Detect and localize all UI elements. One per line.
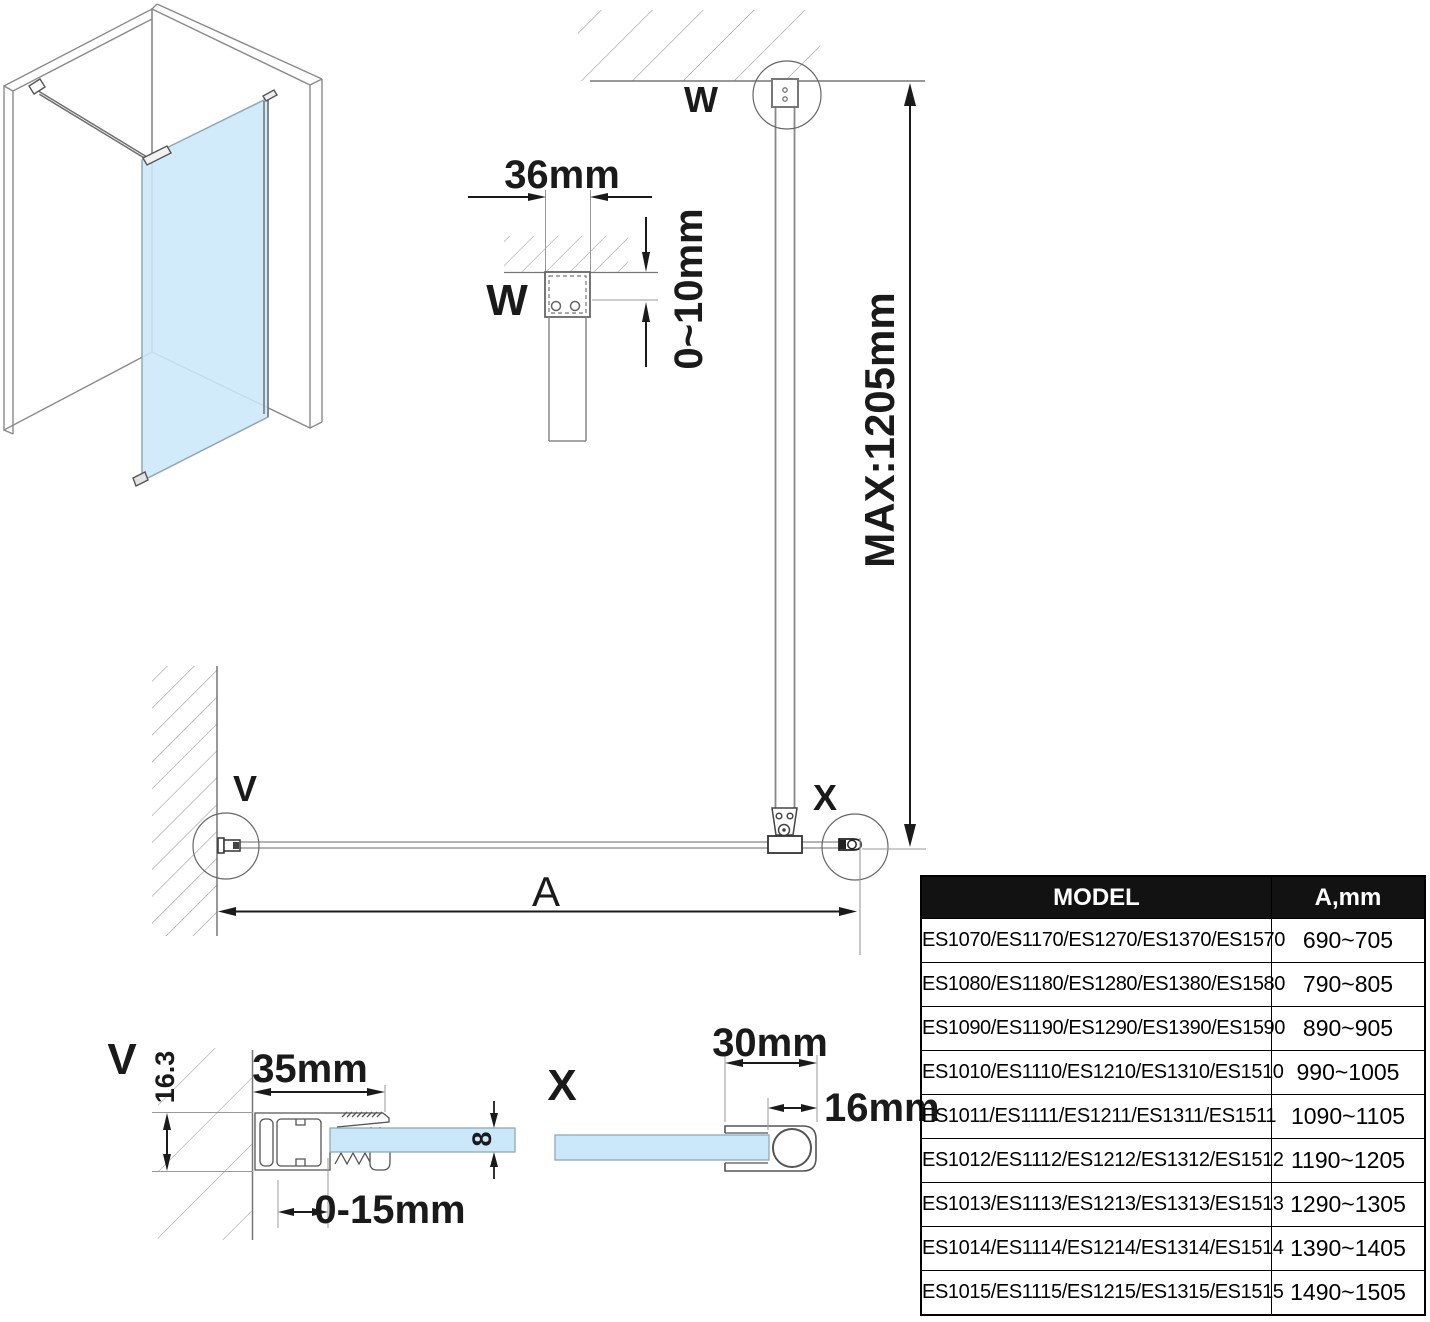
- model-cell: ES1080/ES1180/ES1280/ES1380/ES1580: [921, 963, 1272, 1007]
- table-row: ES1070/ES1170/ES1270/ES1370/ES1570 690~7…: [921, 919, 1425, 963]
- model-cell: ES1070/ES1170/ES1270/ES1370/ES1570: [921, 919, 1272, 963]
- label-v-plan: V: [233, 768, 257, 809]
- dim-max-label: MAX:1205mm: [856, 292, 903, 567]
- dim-30mm-label: 30mm: [712, 1021, 828, 1065]
- dim-8-label: 8: [467, 1131, 497, 1146]
- detail-w: 36mm 0~10mm W: [468, 153, 711, 441]
- dim-35mm-label: 35mm: [252, 1047, 368, 1091]
- model-cell: ES1011/ES1111/ES1211/ES1311/ES1511: [921, 1095, 1272, 1139]
- value-cell: 890~905: [1272, 1007, 1426, 1051]
- value-cell: 1490~1505: [1272, 1271, 1426, 1316]
- value-cell: 1090~1105: [1272, 1095, 1426, 1139]
- isometric-view: [4, 4, 322, 486]
- dim-a-label: A: [532, 868, 560, 915]
- label-x-plan: X: [813, 777, 837, 818]
- model-column-header: MODEL: [921, 876, 1272, 919]
- table-row: ES1014/ES1114/ES1214/ES1314/ES1514 1390~…: [921, 1227, 1425, 1271]
- bar-pivot-bracket: [772, 808, 797, 836]
- support-bar-3d: [37, 90, 152, 162]
- table-row: ES1010/ES1110/ES1210/ES1310/ES1510 990~1…: [921, 1051, 1425, 1095]
- dim-0-15mm-label: 0-15mm: [314, 1188, 465, 1232]
- support-bar-section: [773, 1129, 811, 1167]
- value-cell: 1190~1205: [1272, 1139, 1426, 1183]
- label-w-plan: W: [684, 79, 718, 120]
- table-row: ES1080/ES1180/ES1280/ES1380/ES1580 790~8…: [921, 963, 1425, 1007]
- floor-foot-3d: [133, 472, 148, 486]
- model-cell: ES1090/ES1190/ES1290/ES1390/ES1590: [921, 1007, 1272, 1051]
- table-row: ES1013/ES1113/ES1213/ES1313/ES1513 1290~…: [921, 1183, 1425, 1227]
- ceiling-hatch: [578, 10, 820, 81]
- detail-v: V 16.3 35mm 8 0-15mm: [107, 1035, 515, 1240]
- label-x-detail: X: [547, 1061, 576, 1110]
- detail-w-bar: [549, 317, 586, 441]
- support-bar-plan: [776, 107, 795, 808]
- profile-top-cap-3d: [263, 90, 277, 101]
- glass-section-x: [555, 1135, 769, 1160]
- value-cell: 790~805: [1272, 963, 1426, 1007]
- table-row: ES1011/ES1111/ES1211/ES1311/ES1511 1090~…: [921, 1095, 1425, 1139]
- label-w-detail: W: [486, 276, 528, 325]
- model-cell: ES1012/ES1112/ES1212/ES1312/ES1512: [921, 1139, 1272, 1183]
- installation-diagram-page: W V X A MAX:1205mm 36mm: [0, 0, 1430, 1322]
- wall-profile-plan: [218, 838, 240, 853]
- value-cell: 1290~1305: [1272, 1183, 1426, 1227]
- value-cell: 990~1005: [1272, 1051, 1426, 1095]
- dim-16-3-label: 16.3: [150, 1051, 180, 1104]
- left-wall: [4, 9, 152, 430]
- glass-clamp-plan: [768, 836, 802, 853]
- dim-0-10mm-arrows: [642, 217, 650, 367]
- table-header-row: MODEL A,mm: [921, 876, 1425, 919]
- model-cell: ES1010/ES1110/ES1210/ES1310/ES1510: [921, 1051, 1272, 1095]
- value-cell: 1390~1405: [1272, 1227, 1426, 1271]
- glass-plan: [240, 842, 840, 848]
- table-row: ES1012/ES1112/ES1212/ES1312/ES1512 1190~…: [921, 1139, 1425, 1183]
- glass-end-cap: [839, 839, 861, 850]
- model-cell: ES1014/ES1114/ES1214/ES1314/ES1514: [921, 1227, 1272, 1271]
- model-table: MODEL A,mm ES1070/ES1170/ES1270/ES1370/E…: [920, 875, 1426, 1316]
- model-cell: ES1015/ES1115/ES1215/ES1315/ES1515: [921, 1271, 1272, 1316]
- clamp-spring: [335, 1153, 370, 1164]
- wall-hatch-plan: [152, 666, 217, 936]
- label-v-detail: V: [107, 1035, 137, 1084]
- a-mm-column-header: A,mm: [1272, 876, 1426, 919]
- dim-36mm-label: 36mm: [504, 153, 620, 197]
- dim-0-10mm-label: 0~10mm: [667, 208, 711, 369]
- detail-x: X 30mm 16mm: [547, 1021, 939, 1171]
- model-cell: ES1013/ES1113/ES1213/ES1313/ES1513: [921, 1183, 1272, 1227]
- ceiling-bracket: [772, 79, 798, 107]
- table-row: ES1015/ES1115/ES1215/ES1315/ES1515 1490~…: [921, 1271, 1425, 1316]
- detail-w-bracket: [545, 272, 590, 317]
- value-cell: 690~705: [1272, 919, 1426, 963]
- dim-30mm-arrows: [725, 1055, 817, 1122]
- table-row: ES1090/ES1190/ES1290/ES1390/ES1590 890~9…: [921, 1007, 1425, 1051]
- detail-w-ceiling-hatch: [504, 236, 628, 272]
